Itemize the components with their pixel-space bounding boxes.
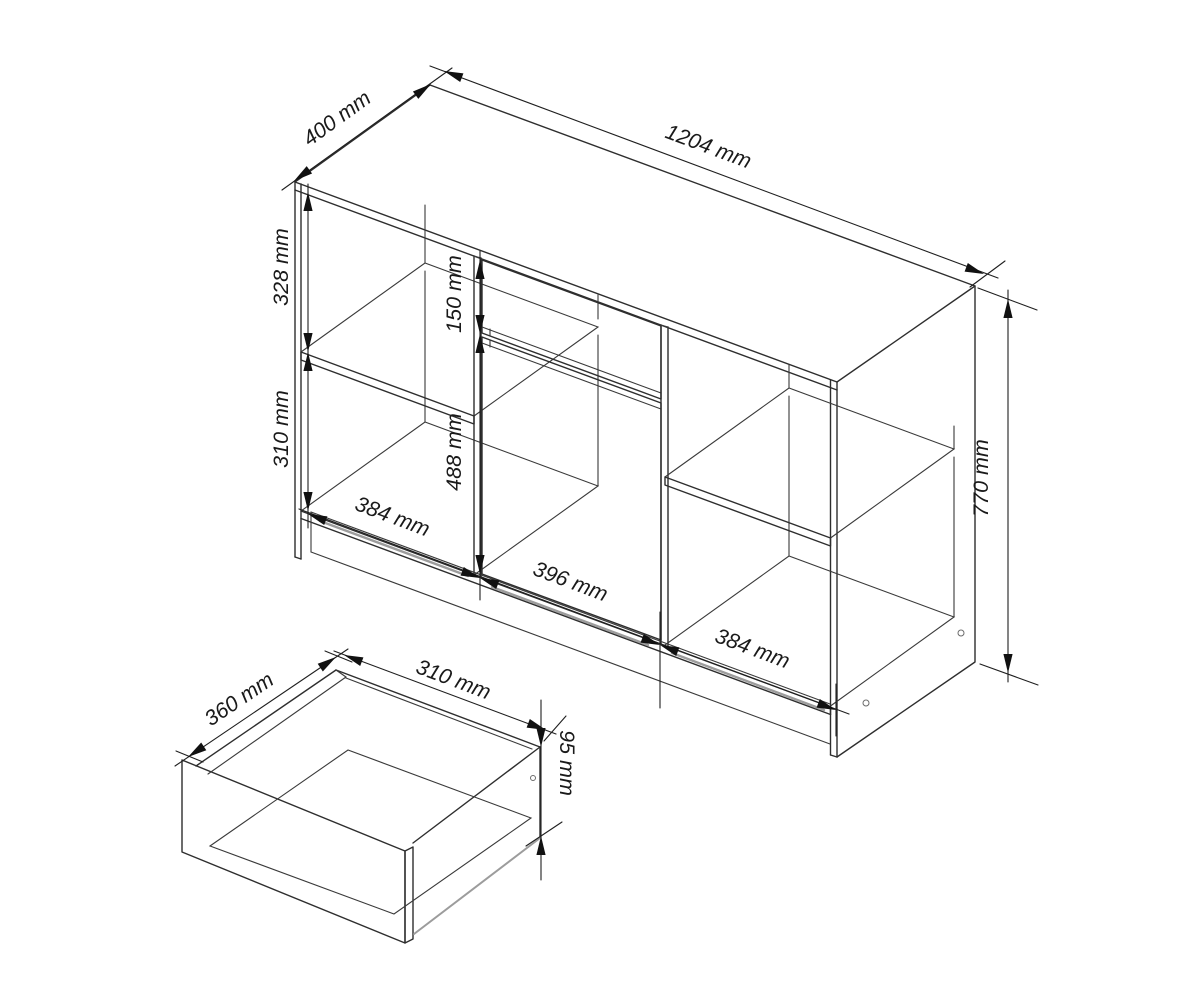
dim-label-drawer-front-height: 150 mm: [442, 255, 466, 333]
right-bottom-panel: [665, 556, 954, 706]
dim-label-drawer-height: 95 mm: [555, 730, 579, 796]
cabinet-right-side-panel: [831, 286, 976, 757]
dim-label-drawer-width: 310 mm: [413, 655, 494, 705]
dim-label-cabinet-depth: 400 mm: [298, 86, 375, 151]
technical-drawing-page: 400 mm 1204 mm 328 mm 310 mm 150 mm 488 …: [0, 0, 1200, 985]
dim-left-openings: 328 mm 310 mm: [269, 184, 313, 528]
drawer-box: [196, 670, 540, 934]
dim-front-heights: 150 mm 488 mm: [442, 251, 485, 600]
cabinet: [295, 85, 975, 757]
dim-section-widths: 384 mm 396 mm 384 mm: [299, 492, 849, 736]
cam-hole: [958, 630, 964, 636]
dim-label-door-height: 488 mm: [442, 413, 466, 491]
dim-drawer-width: 310 mm: [334, 651, 566, 741]
dim-label-cabinet-height: 770 mm: [969, 439, 993, 517]
drawer-bottom-inside: [210, 750, 531, 914]
right-compartment: [665, 365, 954, 706]
dim-label-left-upper-opening: 328 mm: [269, 228, 293, 306]
dim-label-left-lower-opening: 310 mm: [269, 390, 293, 468]
right-shelf: [665, 388, 954, 546]
drawer-front-panel: [482, 260, 661, 399]
dim-label-center-section-width: 396 mm: [530, 557, 611, 607]
dim-label-right-section-width: 384 mm: [712, 624, 793, 674]
dim-drawer-depth: 360 mm: [175, 649, 352, 766]
dimension-drawing: 400 mm 1204 mm 328 mm 310 mm 150 mm 488 …: [0, 0, 1200, 985]
cabinet-left-side-panel: [295, 182, 301, 559]
cabinet-top-panel: [295, 85, 975, 390]
drawer-front-board: [182, 760, 413, 943]
dim-label-drawer-depth: 360 mm: [200, 668, 278, 731]
cam-hole: [531, 776, 536, 781]
cabinet-base: [301, 511, 831, 744]
dim-cabinet-height: 770 mm: [969, 288, 1038, 685]
drawer-detail: 360 mm 310 mm 95 mm: [175, 649, 579, 943]
dim-cabinet-width: 1204 mm: [430, 66, 1005, 287]
dim-cabinet-depth: 400 mm: [282, 68, 452, 190]
dim-label-cabinet-width: 1204 mm: [662, 120, 754, 174]
cam-hole: [863, 700, 869, 706]
